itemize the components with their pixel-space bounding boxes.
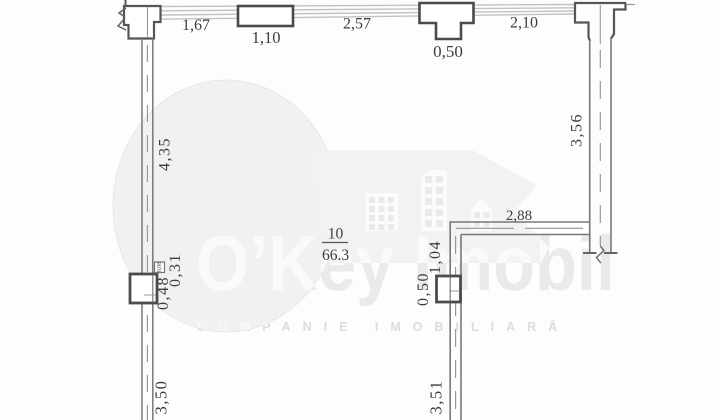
svg-text:1,04: 1,04 [427,240,444,274]
svg-text:0,50: 0,50 [415,272,432,306]
svg-text:2,10: 2,10 [510,15,538,32]
svg-text:1,67: 1,67 [182,17,210,34]
svg-text:66.3: 66.3 [322,247,349,264]
svg-text:3,50: 3,50 [151,380,170,415]
svg-text:0,08: 0,08 [157,262,163,273]
svg-text:0,50: 0,50 [433,42,463,61]
svg-text:4,35: 4,35 [157,137,174,171]
svg-text:2,88: 2,88 [506,208,532,224]
svg-text:3,56: 3,56 [569,113,586,147]
svg-text:10: 10 [328,226,344,243]
svg-text:1,10: 1,10 [252,28,281,47]
svg-text:3,51: 3,51 [426,380,445,415]
svg-text:0,31: 0,31 [167,253,184,287]
svg-text:2,57: 2,57 [343,16,371,33]
